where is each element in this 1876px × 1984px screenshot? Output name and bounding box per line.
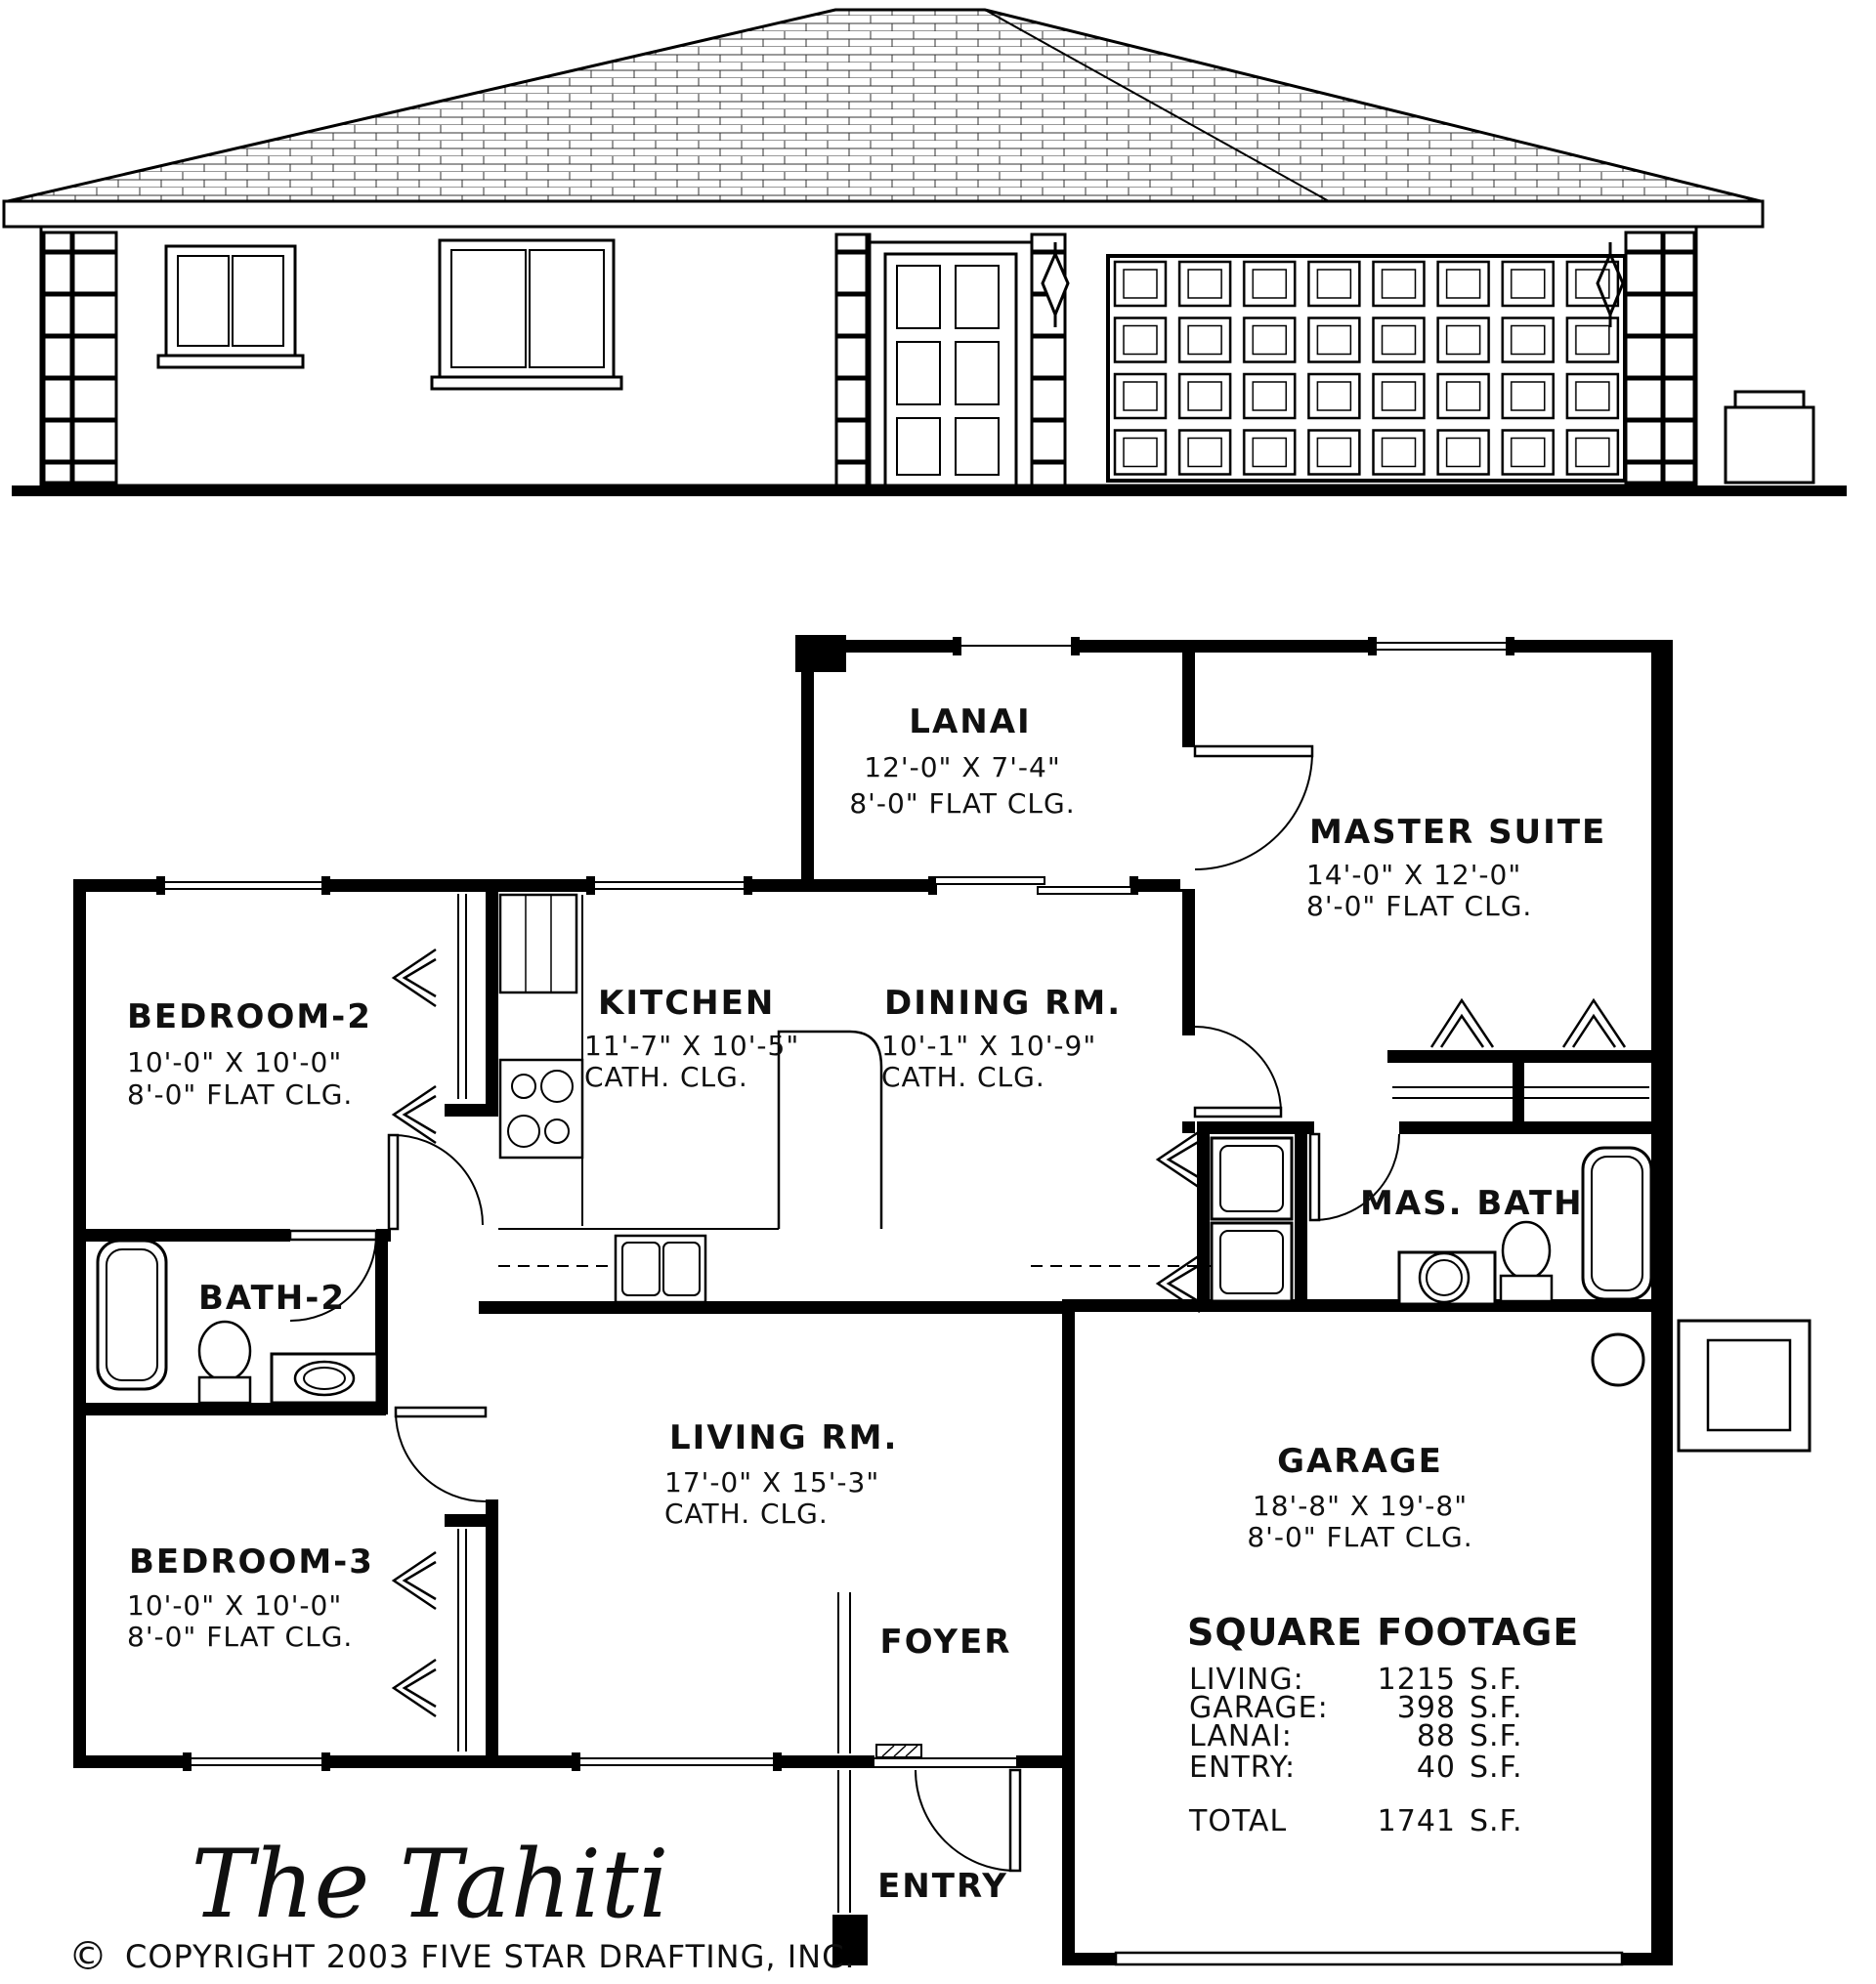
window	[156, 876, 330, 895]
room-dims: 17'-0" X 15'-3"	[664, 1466, 879, 1499]
front-elevation	[4, 10, 1847, 496]
room-ceiling: 8'-0" FLAT CLG.	[1247, 1521, 1472, 1553]
ground-line	[12, 485, 1847, 496]
row-label: LANAI:	[1189, 1719, 1293, 1753]
room-ceiling: CATH. CLG.	[584, 1061, 748, 1093]
door-surround-left	[836, 234, 870, 485]
square-footage-table: SQUARE FOOTAGE LIVING: 1215 S.F. GARAGE:…	[1187, 1611, 1579, 1838]
room-ceiling: CATH. CLG.	[881, 1061, 1045, 1093]
room-dims: 18'-8" X 19'-8"	[1253, 1490, 1468, 1522]
room-name: BATH-2	[198, 1279, 346, 1318]
row-unit: S.F.	[1470, 1719, 1523, 1753]
room-ceiling: 8'-0" FLAT CLG.	[127, 1621, 353, 1653]
quoins-left	[44, 232, 116, 483]
table-title: SQUARE FOOTAGE	[1187, 1611, 1579, 1654]
window	[586, 876, 752, 895]
room-name: LIVING RM.	[669, 1418, 898, 1457]
room-dims: 10'-0" X 10'-0"	[127, 1046, 342, 1078]
room-name: DINING RM.	[884, 984, 1122, 1023]
copyright-text: COPYRIGHT 2003 FIVE STAR DRAFTING, INC.	[125, 1938, 856, 1975]
room-dims: 12'-0" X 7'-4"	[864, 751, 1060, 783]
window	[572, 1752, 782, 1771]
drawing-canvas: LANAI 12'-0" X 7'-4" 8'-0" FLAT CLG. MAS…	[0, 0, 1876, 1984]
room-ceiling: CATH. CLG.	[664, 1498, 829, 1530]
elevation-window-left	[158, 246, 303, 367]
room-name: BEDROOM-2	[127, 997, 372, 1036]
water-heater-icon	[1593, 1334, 1643, 1385]
foyer-entry-walls	[838, 1592, 850, 1913]
total-value: 1741	[1378, 1804, 1456, 1838]
total-label: TOTAL	[1188, 1804, 1287, 1838]
total-unit: S.F.	[1470, 1804, 1523, 1838]
room-ceiling: 8'-0" FLAT CLG.	[849, 787, 1075, 820]
utility-box	[1726, 392, 1813, 483]
room-ceiling: 8'-0" FLAT CLG.	[1306, 890, 1532, 922]
front-door	[870, 242, 1032, 485]
toilet-icon	[1503, 1222, 1550, 1279]
room-name: FOYER	[880, 1623, 1012, 1662]
row-label: ENTRY:	[1189, 1751, 1296, 1785]
room-dims: 10'-0" X 10'-0"	[127, 1589, 342, 1622]
room-name: ENTRY	[877, 1867, 1008, 1906]
room-ceiling: 8'-0" FLAT CLG.	[127, 1078, 353, 1111]
window	[183, 1752, 330, 1771]
hip-roof	[8, 10, 1761, 201]
floor-plan: LANAI 12'-0" X 7'-4" 8'-0" FLAT CLG. MAS…	[68, 635, 1810, 1979]
sliding-door	[928, 876, 1138, 895]
row-value: 88	[1417, 1719, 1456, 1753]
bath2-fixtures	[98, 1241, 377, 1403]
room-name: KITCHEN	[598, 984, 775, 1023]
toilet-icon	[199, 1322, 250, 1380]
room-name: BEDROOM-3	[129, 1542, 374, 1582]
row-unit: S.F.	[1470, 1751, 1523, 1785]
ac-pad	[1679, 1321, 1810, 1451]
window	[1368, 637, 1514, 655]
elevation-window-center	[432, 240, 621, 389]
laundry-units	[1212, 1138, 1292, 1301]
pantry	[500, 895, 576, 992]
room-name: MAS. BATH	[1360, 1184, 1584, 1223]
room-dims: 14'-0" X 12'-0"	[1306, 859, 1521, 891]
room-name: LANAI	[909, 702, 1031, 741]
room-dims: 10'-1" X 10'-9"	[881, 1030, 1096, 1062]
garage-door-plan	[1116, 1953, 1622, 1964]
plan-title: The Tahiti	[192, 1830, 669, 1939]
plan-sheet: LANAI 12'-0" X 7'-4" 8'-0" FLAT CLG. MAS…	[0, 0, 1876, 1984]
screen-opening	[953, 637, 1080, 655]
room-name: GARAGE	[1277, 1442, 1443, 1481]
room-dims: 11'-7" X 10'-5"	[584, 1030, 799, 1062]
garage-door	[1108, 256, 1625, 481]
master-bath-fixtures	[1399, 1148, 1651, 1304]
row-value: 40	[1417, 1751, 1456, 1785]
fascia	[4, 201, 1763, 227]
copyright-symbol: ©	[68, 1934, 107, 1979]
room-name: MASTER SUITE	[1309, 813, 1606, 852]
quoins-right	[1626, 232, 1694, 483]
kitchen-fixtures	[498, 895, 1212, 1302]
